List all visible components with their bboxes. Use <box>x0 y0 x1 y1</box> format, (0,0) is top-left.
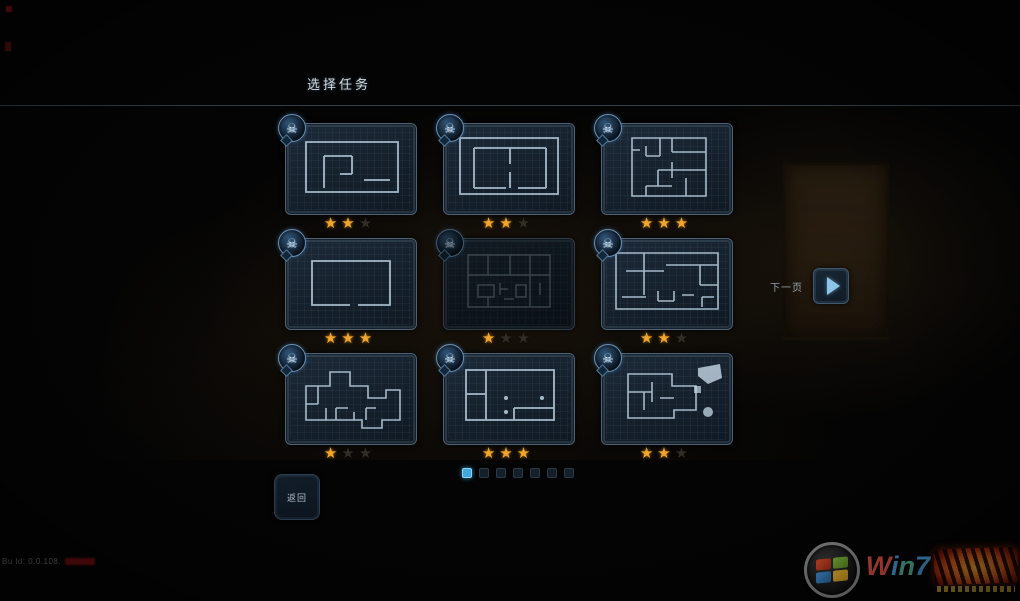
mission-cell: ☠ ★★★ <box>601 238 731 353</box>
star-rating: ★★★ <box>285 330 415 348</box>
mission-card-3[interactable]: ☠ <box>601 123 733 215</box>
mission-grid: ☠ ★★★ ☠ ★★★ ☠ ★★★ ☠ <box>285 123 731 468</box>
mission-card-7[interactable]: ☠ <box>285 353 417 445</box>
star-rating: ★★★ <box>601 330 731 348</box>
mission-cell: ☠ ★★★ <box>443 123 573 238</box>
skull-badge: ☠ <box>278 229 306 257</box>
floorplan-map-4 <box>286 245 416 323</box>
mission-card-5[interactable]: ☠ <box>443 238 575 330</box>
star-icon: ★ <box>675 330 692 347</box>
star-rating: ★★★ <box>443 330 573 348</box>
floorplan-map-1 <box>286 130 416 208</box>
star-rating: ★★★ <box>443 215 573 233</box>
header-divider <box>0 105 1020 106</box>
skull-icon: ☠ <box>286 122 298 135</box>
star-rating: ★★★ <box>601 215 731 233</box>
page-dot-5[interactable] <box>530 468 540 478</box>
star-icon: ★ <box>517 445 534 462</box>
page-title: 选择任务 <box>307 74 371 93</box>
watermark: Win7 <box>804 542 1018 598</box>
mission-cell: ☠ ★★★ <box>285 353 415 468</box>
mission-card-6[interactable]: ☠ <box>601 238 733 330</box>
mission-card-9[interactable]: ☠ <box>601 353 733 445</box>
star-icon: ★ <box>482 445 499 462</box>
floorplan-map-8 <box>444 360 574 438</box>
floorplan-map-6 <box>602 245 732 323</box>
star-icon: ★ <box>359 215 376 232</box>
page-dot-3[interactable] <box>496 468 506 478</box>
mission-cell: ☠ ★★★ <box>285 238 415 353</box>
skull-badge: ☠ <box>436 229 464 257</box>
pager-next: 下一页 <box>770 268 849 304</box>
skull-icon: ☠ <box>444 352 456 365</box>
floorplan-map-9 <box>602 360 732 438</box>
star-icon: ★ <box>341 330 358 347</box>
star-rating: ★★★ <box>285 215 415 233</box>
watermark-flame-group <box>934 548 1018 592</box>
skull-badge: ☠ <box>436 114 464 142</box>
flame-logo-graphic <box>933 547 1018 586</box>
mission-card-2[interactable]: ☠ <box>443 123 575 215</box>
star-icon: ★ <box>640 445 657 462</box>
watermark-brand: Win7 <box>866 551 930 582</box>
mission-cell: ☠ ★★★ <box>285 123 415 238</box>
mission-cell: ☠ ★★★ <box>601 353 731 468</box>
skull-icon: ☠ <box>286 352 298 365</box>
star-icon: ★ <box>640 215 657 232</box>
star-icon: ★ <box>517 215 534 232</box>
star-icon: ★ <box>359 330 376 347</box>
star-icon: ★ <box>482 330 499 347</box>
star-icon: ★ <box>499 445 516 462</box>
page-dot-2[interactable] <box>479 468 489 478</box>
skull-icon: ☠ <box>286 237 298 250</box>
build-info: Bu ld: 0.0.108. <box>2 557 95 566</box>
star-icon: ★ <box>324 215 341 232</box>
floorplan-map-7 <box>286 360 416 438</box>
page-dot-4[interactable] <box>513 468 523 478</box>
back-button-label: 返回 <box>287 491 307 504</box>
back-button[interactable]: 返回 <box>274 474 320 520</box>
next-page-button[interactable] <box>813 268 849 304</box>
star-icon: ★ <box>517 330 534 347</box>
star-icon: ★ <box>482 215 499 232</box>
skull-badge: ☠ <box>594 114 622 142</box>
star-icon: ★ <box>324 445 341 462</box>
star-icon: ★ <box>324 330 341 347</box>
star-icon: ★ <box>341 445 358 462</box>
floorplan-map-3 <box>602 130 732 208</box>
floorplan-map-2 <box>444 130 574 208</box>
mission-card-4[interactable]: ☠ <box>285 238 417 330</box>
watermark-caption-text <box>937 586 1015 592</box>
star-icon: ★ <box>499 330 516 347</box>
star-icon: ★ <box>499 215 516 232</box>
skull-badge: ☠ <box>278 344 306 372</box>
windows-logo-icon <box>804 542 860 598</box>
floorplan-map-5 <box>444 245 574 323</box>
skull-icon: ☠ <box>444 237 456 250</box>
skull-icon: ☠ <box>602 352 614 365</box>
star-icon: ★ <box>341 215 358 232</box>
mission-cell: ☠ ★★★ <box>443 238 573 353</box>
star-rating: ★★★ <box>285 445 415 463</box>
star-icon: ★ <box>657 330 674 347</box>
star-icon: ★ <box>657 445 674 462</box>
skull-icon: ☠ <box>602 237 614 250</box>
mission-cell: ☠ ★★★ <box>443 353 573 468</box>
build-red-flag <box>65 558 95 565</box>
page-dot-6[interactable] <box>547 468 557 478</box>
skull-icon: ☠ <box>602 122 614 135</box>
star-rating: ★★★ <box>443 445 573 463</box>
mission-card-1[interactable]: ☠ <box>285 123 417 215</box>
play-icon <box>827 277 840 295</box>
star-icon: ★ <box>640 330 657 347</box>
skull-badge: ☠ <box>436 344 464 372</box>
skull-badge: ☠ <box>594 344 622 372</box>
recorder-mark-top <box>6 6 12 12</box>
star-icon: ★ <box>359 445 376 462</box>
skull-badge: ☠ <box>278 114 306 142</box>
mission-cell: ☠ ★★★ <box>601 123 731 238</box>
background-door <box>783 162 889 340</box>
star-rating: ★★★ <box>601 445 731 463</box>
star-icon: ★ <box>675 445 692 462</box>
pagination <box>462 468 574 478</box>
windows-flag-icon <box>816 556 848 583</box>
recorder-mark-side <box>5 42 11 51</box>
skull-icon: ☠ <box>444 122 456 135</box>
skull-badge: ☠ <box>594 229 622 257</box>
next-page-label: 下一页 <box>770 279 803 294</box>
star-icon: ★ <box>657 215 674 232</box>
star-icon: ★ <box>675 215 692 232</box>
build-text: Bu ld: 0.0.108. <box>2 557 61 566</box>
page-dot-7[interactable] <box>564 468 574 478</box>
mission-card-8[interactable]: ☠ <box>443 353 575 445</box>
page-dot-1[interactable] <box>462 468 472 478</box>
